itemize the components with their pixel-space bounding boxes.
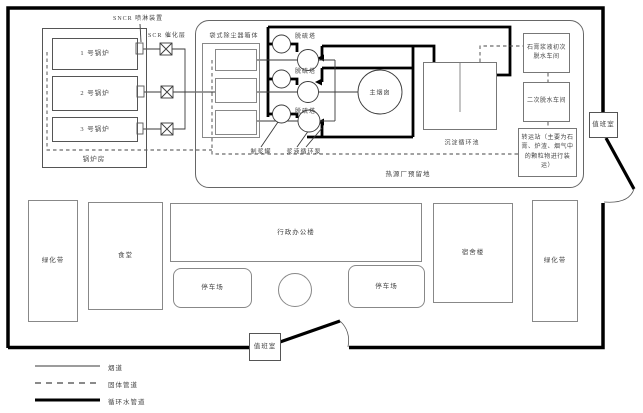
bag-filter-cell-3	[215, 110, 257, 135]
legend-lines	[35, 366, 100, 400]
boiler-3-label: 3 号锅炉	[80, 125, 109, 134]
boiler-2-label: 2 号锅炉	[80, 89, 109, 98]
gypsum-dewatering-label: 石膏浆液初次脱水车间	[526, 44, 567, 63]
secondary-dewatering-label: 二次脱水车间	[527, 97, 566, 106]
duty-room-right-label: 值班室	[592, 120, 615, 129]
dormitory-building: 宿舍楼	[433, 203, 513, 303]
scr-label: SCR 催化层	[148, 30, 186, 39]
duty-room-bottom: 值班室	[249, 333, 281, 361]
canteen: 食堂	[88, 202, 163, 310]
tower-3-label: 脱硫塔	[295, 106, 316, 115]
legend-label-solid-pipe: 固体管道	[108, 379, 138, 389]
bag-filter-cell-2	[215, 78, 257, 103]
admin-office-building: 行政办公楼	[170, 203, 422, 262]
canteen-label: 食堂	[118, 251, 133, 260]
boiler-1-label: 1 号锅炉	[80, 49, 109, 58]
legend-label-flue: 烟道	[108, 362, 123, 372]
sedimentation-pool	[423, 62, 497, 130]
gypsum-dewatering-box: 石膏浆液初次脱水车间	[523, 33, 570, 73]
duty-room-bottom-label: 值班室	[254, 342, 277, 351]
boiler-2: 2 号锅炉	[52, 76, 138, 111]
transfer-station-box: 转运站（主要为石膏、炉渣、烟气中的颗粒物进行装运）	[518, 128, 577, 177]
slurry-tank-label: 制浆罐	[250, 147, 271, 156]
boiler-house-label: 锅炉房	[83, 153, 106, 163]
green-belt-right-label: 绿化带	[544, 256, 567, 265]
green-belt-right: 绿化带	[532, 200, 578, 322]
parking-lot-right-label: 停车场	[375, 282, 398, 291]
bag-filter-cell-1	[215, 49, 257, 71]
chimney-label: 主烟囱	[369, 88, 390, 97]
tower-2-label: 脱硫塔	[295, 66, 316, 75]
transfer-station-label: 转运站（主要为石膏、炉渣、烟气中的颗粒物进行装运）	[521, 134, 574, 171]
bag-filter-label: 袋式除尘器箱体	[209, 31, 258, 40]
plant-layout-diagram: 1 号锅炉 2 号锅炉 3 号锅炉 锅炉房 SNCR 喷淋装置 SCR 催化层 …	[0, 0, 643, 413]
legend-label-circ-water: 循环水管道	[108, 396, 146, 406]
green-belt-left-label: 绿化带	[42, 256, 65, 265]
pool-label: 沉淀循环池	[444, 138, 479, 147]
scr-catalyst-symbols	[160, 43, 173, 135]
boiler-3: 3 号锅炉	[52, 117, 138, 142]
boiler-1: 1 号锅炉	[52, 38, 138, 70]
sncr-label: SNCR 喷淋装置	[113, 13, 163, 22]
secondary-dewatering-box: 二次脱水车间	[523, 82, 570, 122]
parking-lot-left: 停车场	[173, 268, 252, 308]
roundabout-circle	[279, 274, 312, 307]
dormitory-label: 宿舍楼	[462, 248, 485, 257]
slurry-pump-label: 浆液循环泵	[286, 147, 321, 156]
duty-room-right: 值班室	[589, 112, 618, 138]
admin-office-label: 行政办公楼	[277, 228, 315, 237]
reserved-area-label: 热源厂预留地	[386, 168, 431, 178]
parking-lot-left-label: 停车场	[201, 283, 224, 292]
parking-lot-right: 停车场	[348, 265, 425, 308]
tower-1-label: 脱硫塔	[295, 31, 316, 40]
green-belt-left: 绿化带	[28, 200, 78, 322]
